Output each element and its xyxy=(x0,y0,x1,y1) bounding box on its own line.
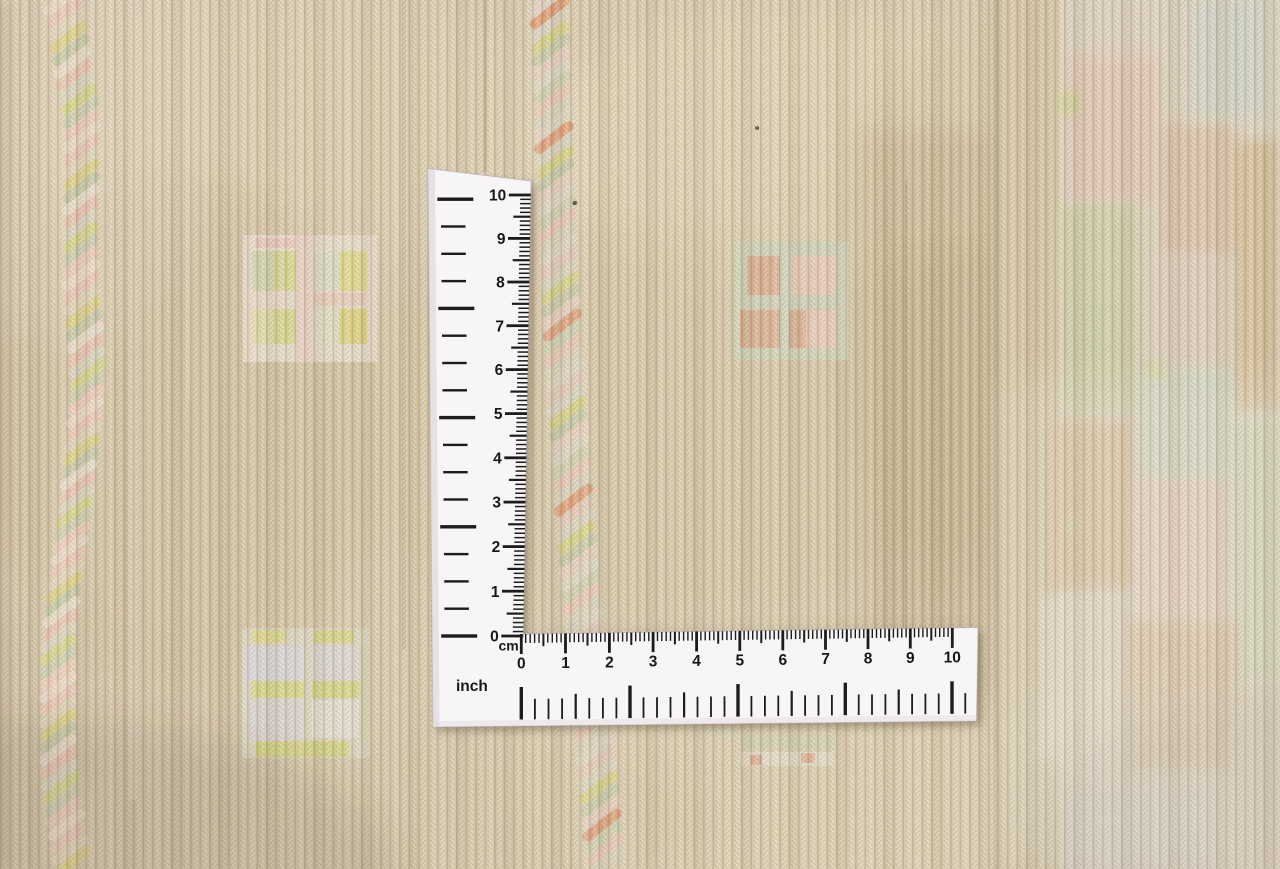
svg-text:5: 5 xyxy=(494,406,503,423)
svg-text:inch: inch xyxy=(456,678,488,695)
svg-text:8: 8 xyxy=(864,651,873,668)
svg-text:3: 3 xyxy=(649,654,658,671)
svg-text:0: 0 xyxy=(517,656,526,673)
svg-text:4: 4 xyxy=(692,653,701,670)
svg-text:cm: cm xyxy=(499,638,519,654)
svg-text:0: 0 xyxy=(490,629,499,646)
svg-text:2: 2 xyxy=(492,539,501,556)
svg-text:4: 4 xyxy=(493,450,502,467)
svg-text:10: 10 xyxy=(489,188,506,205)
svg-text:1: 1 xyxy=(491,584,500,601)
svg-text:6: 6 xyxy=(495,362,504,379)
svg-text:6: 6 xyxy=(778,652,787,669)
svg-text:7: 7 xyxy=(495,318,504,335)
svg-text:8: 8 xyxy=(496,275,505,292)
svg-text:2: 2 xyxy=(605,654,614,671)
svg-text:7: 7 xyxy=(821,651,830,668)
svg-text:9: 9 xyxy=(906,650,915,667)
svg-text:1: 1 xyxy=(561,655,570,672)
svg-text:9: 9 xyxy=(497,231,506,248)
svg-text:3: 3 xyxy=(492,495,501,512)
svg-text:5: 5 xyxy=(735,652,744,669)
svg-text:10: 10 xyxy=(944,649,961,666)
